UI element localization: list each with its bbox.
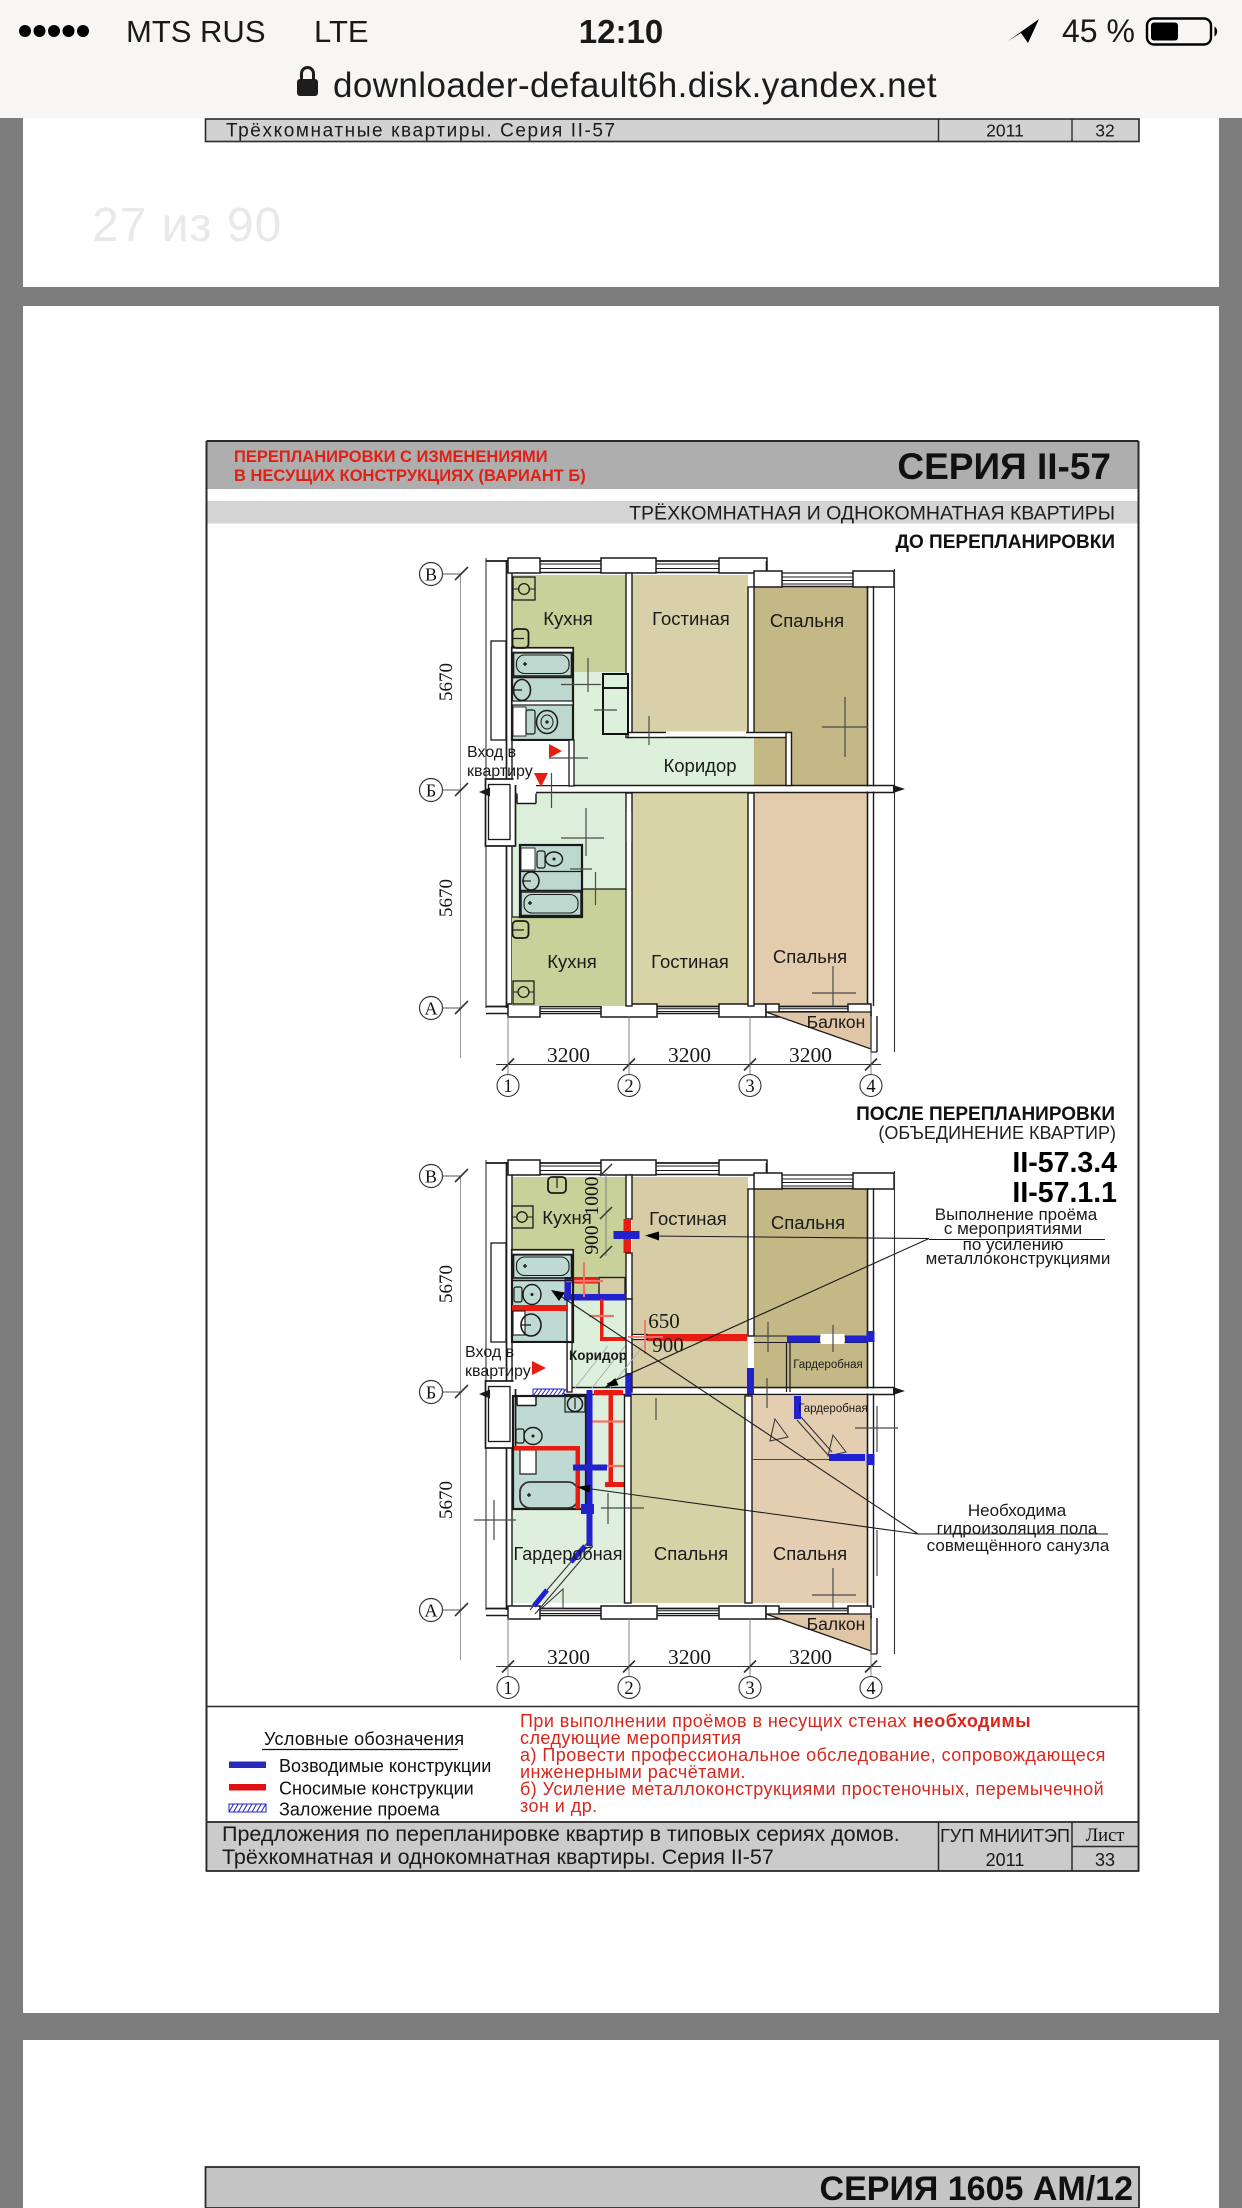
svg-text:ГУП МНИИТЭП: ГУП МНИИТЭП: [940, 1826, 1070, 1846]
svg-text:Кухня: Кухня: [543, 608, 593, 629]
svg-text:Предложения по перепланировке: Предложения по перепланировке квартир в …: [222, 1822, 900, 1846]
svg-text:ПЕРЕПЛАНИРОВКИ С ИЗМЕНЕНИЯМИ: ПЕРЕПЛАНИРОВКИ С ИЗМЕНЕНИЯМИ: [234, 448, 548, 466]
svg-text:совмещённого санузла: совмещённого санузла: [927, 1536, 1110, 1555]
svg-text:Сносимые конструкции: Сносимые конструкции: [279, 1779, 474, 1799]
svg-text:СЕРИЯ II-57: СЕРИЯ II-57: [897, 446, 1111, 487]
svg-text:2: 2: [624, 1679, 633, 1699]
svg-text:Необходима: Необходима: [968, 1501, 1067, 1520]
svg-text:27 из 90: 27 из 90: [92, 199, 282, 252]
svg-text:3200: 3200: [547, 1043, 590, 1067]
svg-text:45 %: 45 %: [1062, 13, 1135, 49]
svg-text:4: 4: [866, 1679, 875, 1699]
svg-text:Гостиная: Гостиная: [649, 1208, 727, 1229]
svg-text:II-57.3.4: II-57.3.4: [1012, 1147, 1117, 1179]
svg-text:MTS RUS: MTS RUS: [126, 14, 266, 49]
svg-text:б) Усиление металлоконструкция: б) Усиление металлоконструкциями простен…: [520, 1779, 1104, 1799]
svg-text:3200: 3200: [789, 1645, 832, 1669]
svg-text:Гардеробная: Гардеробная: [514, 1544, 623, 1564]
svg-text:2011: 2011: [986, 121, 1024, 141]
svg-text:3200: 3200: [668, 1043, 711, 1067]
svg-text:5670: 5670: [436, 663, 457, 701]
svg-text:квартиру: квартиру: [467, 763, 533, 780]
svg-text:Вход в: Вход в: [467, 744, 516, 761]
svg-text:Лист: Лист: [1086, 1826, 1125, 1846]
svg-text:Гостиная: Гостиная: [652, 608, 730, 629]
svg-text:ТРЁХКОМНАТНАЯ И ОДНОКОМНАТНАЯ: ТРЁХКОМНАТНАЯ И ОДНОКОМНАТНАЯ КВАРТИРЫ: [629, 503, 1115, 525]
svg-text:ПОСЛЕ ПЕРЕПЛАНИРОВКИ: ПОСЛЕ ПЕРЕПЛАНИРОВКИ: [856, 1104, 1115, 1125]
svg-text:900: 900: [582, 1225, 603, 1254]
svg-text:Б: Б: [426, 1383, 436, 1403]
svg-text:А: А: [425, 999, 438, 1019]
svg-text:Коридор: Коридор: [663, 755, 736, 776]
svg-text:1000: 1000: [582, 1177, 603, 1216]
svg-text:(ОБЪЕДИНЕНИЕ КВАРТИР): (ОБЪЕДИНЕНИЕ КВАРТИР): [878, 1123, 1116, 1143]
svg-text:А: А: [425, 1601, 438, 1621]
svg-text:Спальня: Спальня: [771, 1212, 845, 1233]
svg-text:Вход в: Вход в: [465, 1344, 514, 1361]
svg-text:Спальня: Спальня: [770, 610, 844, 631]
svg-text:5670: 5670: [436, 1265, 457, 1303]
svg-text:Балкон: Балкон: [807, 1012, 866, 1032]
svg-text:Трёхкомнатные квартиры. Серия: Трёхкомнатные квартиры. Серия II-57: [226, 121, 617, 142]
svg-text:32: 32: [1095, 121, 1114, 141]
svg-text:Заложение проема: Заложение проема: [279, 1800, 441, 1820]
svg-text:квартиру: квартиру: [465, 1363, 531, 1380]
svg-text:downloader-default6h.disk.yand: downloader-default6h.disk.yandex.net: [333, 66, 937, 105]
svg-text:В НЕСУЩИХ КОНСТРУКЦИЯХ (ВАРИАН: В НЕСУЩИХ КОНСТРУКЦИЯХ (ВАРИАНТ Б): [234, 467, 586, 485]
svg-text:Коридор: Коридор: [569, 1348, 627, 1363]
svg-text:LTE: LTE: [314, 14, 369, 49]
svg-text:Гардеробная: Гардеробная: [798, 1403, 868, 1415]
svg-text:СЕРИЯ 1605 АМ/12: СЕРИЯ 1605 АМ/12: [820, 2170, 1133, 2208]
svg-text:1: 1: [503, 1077, 512, 1097]
svg-text:2011: 2011: [986, 1850, 1025, 1870]
svg-text:1: 1: [503, 1679, 512, 1699]
svg-text:Спальня: Спальня: [773, 946, 847, 967]
svg-text:5670: 5670: [436, 1481, 457, 1519]
svg-text:Кухня: Кухня: [547, 951, 597, 972]
svg-text:33: 33: [1095, 1850, 1115, 1870]
svg-text:5670: 5670: [436, 879, 457, 917]
svg-text:3: 3: [745, 1679, 754, 1699]
svg-text:металлоконструкциями: металлоконструкциями: [926, 1249, 1111, 1268]
svg-text:3200: 3200: [789, 1043, 832, 1067]
svg-text:3: 3: [745, 1077, 754, 1097]
svg-text:3200: 3200: [547, 1645, 590, 1669]
svg-text:В: В: [425, 565, 437, 585]
svg-text:2: 2: [624, 1077, 633, 1097]
svg-text:4: 4: [866, 1077, 875, 1097]
svg-text:12:10: 12:10: [579, 13, 663, 50]
svg-text:Балкон: Балкон: [807, 1614, 866, 1634]
svg-text:Возводимые конструкции: Возводимые конструкции: [279, 1756, 491, 1776]
svg-text:Гостиная: Гостиная: [651, 951, 729, 972]
svg-text:3200: 3200: [668, 1645, 711, 1669]
svg-text:Спальня: Спальня: [654, 1543, 728, 1564]
svg-text:Спальня: Спальня: [773, 1543, 847, 1564]
svg-text:650: 650: [648, 1309, 680, 1333]
svg-text:В: В: [425, 1167, 437, 1187]
svg-text:ДО ПЕРЕПЛАНИРОВКИ: ДО ПЕРЕПЛАНИРОВКИ: [895, 532, 1115, 553]
svg-text:Трёхкомнатная и однокомнатная: Трёхкомнатная и однокомнатная квартиры. …: [222, 1845, 774, 1869]
svg-text:Условные обозначения: Условные обозначения: [264, 1729, 464, 1749]
svg-text:Гардеробная: Гардеробная: [793, 1359, 863, 1371]
svg-text:зон и др.: зон и др.: [520, 1796, 598, 1816]
svg-text:Б: Б: [426, 781, 436, 801]
